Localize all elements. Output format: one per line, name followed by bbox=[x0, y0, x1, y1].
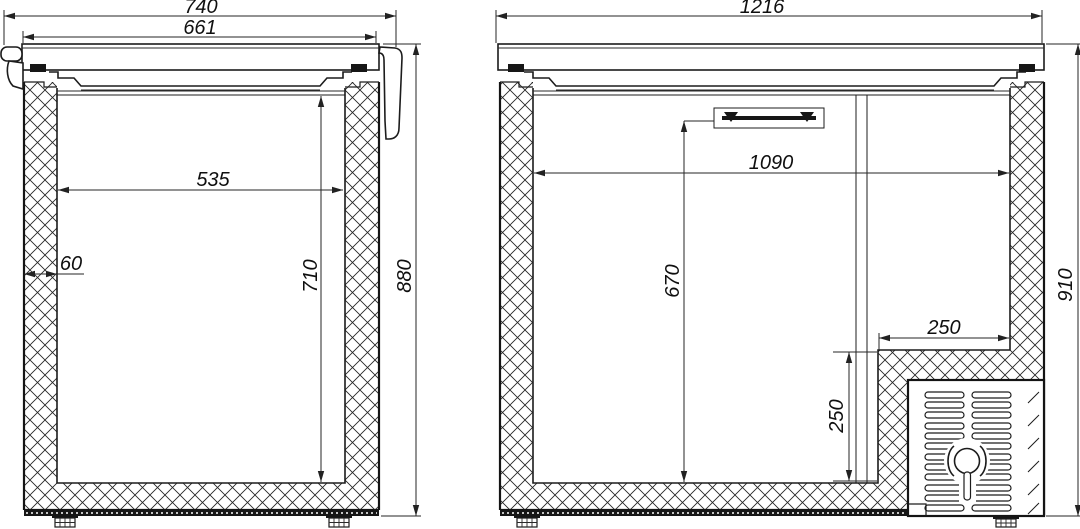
left-freezer-section: 740 661 535 60 710 bbox=[1, 0, 421, 527]
foot bbox=[52, 515, 78, 527]
dim-label: 710 bbox=[300, 259, 322, 292]
niche-side-insulation bbox=[878, 380, 908, 483]
bottom-insulation bbox=[500, 483, 908, 510]
dim-label: 880 bbox=[394, 259, 416, 292]
left-wall-insulation bbox=[24, 82, 57, 510]
right-wall-insulation bbox=[345, 82, 379, 510]
lid-gasket-left bbox=[30, 64, 46, 72]
bottom-insulation bbox=[24, 483, 379, 510]
dim-label: 1216 bbox=[740, 0, 785, 18]
compressor-compartment bbox=[908, 380, 1044, 516]
dim-lid-width-661: 661 bbox=[23, 17, 376, 43]
foot bbox=[993, 516, 1019, 527]
dim-label: 910 bbox=[1055, 268, 1077, 301]
dim-label: 670 bbox=[662, 264, 684, 297]
niche-top-insulation bbox=[878, 350, 1044, 380]
lid-handle bbox=[379, 47, 402, 139]
foot bbox=[514, 515, 540, 527]
freezer-cross-sections: 740 661 535 60 710 bbox=[0, 0, 1080, 529]
lid-gasket-left bbox=[508, 64, 524, 72]
left-wall-insulation bbox=[500, 82, 533, 510]
right-freezer-section: 1216 1090 670 250 250 bbox=[496, 0, 1080, 527]
lid-gasket-right bbox=[1019, 64, 1035, 72]
dim-label: 1090 bbox=[749, 152, 794, 174]
foot bbox=[326, 515, 352, 527]
dim-label: 250 bbox=[926, 317, 960, 339]
interior-lamp bbox=[714, 108, 824, 128]
dim-label: 661 bbox=[183, 17, 216, 39]
technical-drawing-canvas: 740 661 535 60 710 bbox=[0, 0, 1080, 529]
dim-label: 250 bbox=[826, 399, 848, 433]
hinge-barrel bbox=[1, 47, 22, 61]
dim-overall-height-910: 910 bbox=[1046, 44, 1080, 516]
dim-label: 60 bbox=[60, 253, 82, 275]
lid-liner-profile bbox=[524, 72, 1026, 86]
lid-gasket-right bbox=[351, 64, 367, 72]
hinge-bracket bbox=[7, 61, 23, 89]
dim-overall-width-1216: 1216 bbox=[496, 0, 1042, 43]
right-wall-insulation bbox=[1010, 82, 1044, 350]
dim-label: 535 bbox=[196, 169, 230, 191]
dim-label: 740 bbox=[184, 0, 217, 18]
lid-liner-profile bbox=[49, 72, 352, 86]
